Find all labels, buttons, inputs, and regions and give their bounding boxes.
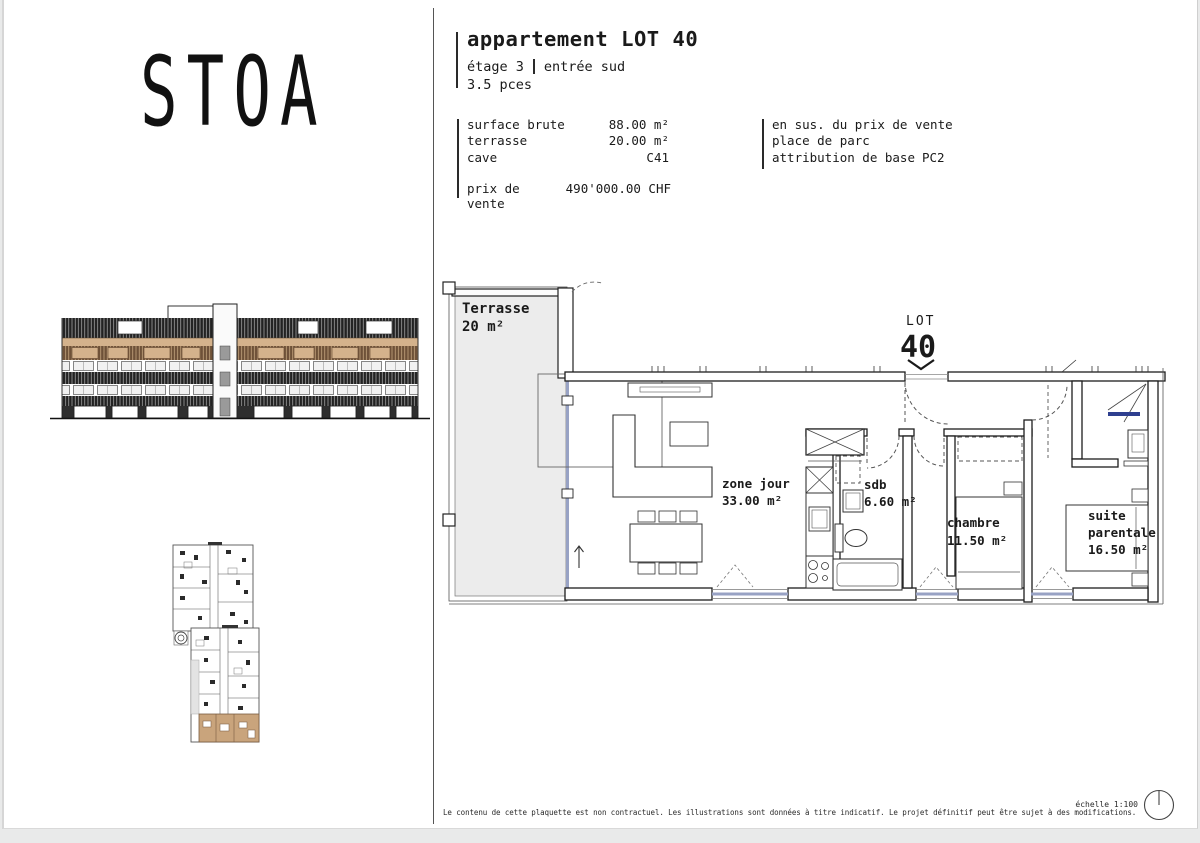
price-value: 490'000.00 CHF	[559, 181, 671, 211]
title-rule	[456, 32, 458, 88]
detail-label: cave	[467, 150, 591, 166]
living-room-furniture	[575, 383, 713, 574]
stairwell-tower	[213, 304, 237, 418]
entry-arrow	[575, 546, 584, 568]
living-label: zone jour	[722, 476, 790, 491]
elevator-symbol	[174, 631, 188, 645]
lot-caption: LOT	[906, 314, 935, 329]
building-elevation	[48, 300, 433, 422]
extras-item: place de parc	[772, 133, 953, 149]
highlighted-floor-3	[62, 338, 418, 360]
terrace-post	[443, 282, 455, 294]
bedroom-label: chambre	[947, 515, 1000, 530]
bath-area-label: 6.60 m²	[864, 494, 917, 509]
table-row: cave C41	[467, 150, 669, 166]
terrace-post	[443, 514, 455, 526]
attribution-label: attribution de base	[772, 150, 922, 166]
nightstand	[1004, 482, 1022, 495]
lot-number: 40	[900, 330, 936, 365]
bathtub	[833, 559, 902, 590]
price-row: prix de vente 490'000.00 CHF	[467, 181, 671, 211]
extras-block: en sus. du prix de vente place de parc a…	[772, 117, 953, 166]
living-area-label: 33.00 m²	[722, 493, 782, 508]
detail-value: 88.00 m²	[591, 117, 669, 133]
detail-value: 20.00 m²	[591, 133, 669, 149]
detail-value: C41	[591, 150, 669, 166]
plaquette-page: STOA appartement LOT 40 étage 3entrée su…	[0, 0, 1200, 843]
entrance-door	[905, 375, 948, 425]
table-row: surface brute 88.00 m²	[467, 117, 669, 133]
entrance-label: entrée sud	[544, 59, 625, 75]
floor-plan: Terrasse 20 m² zone jour 33.00 m² sdb 6.…	[438, 278, 1178, 618]
key-plan-terrace-strip	[191, 660, 199, 714]
north-indicator-icon	[1142, 787, 1178, 823]
pieces-label: 3.5 pces	[467, 77, 532, 93]
bath-label: sdb	[864, 477, 887, 492]
stove	[806, 556, 833, 588]
terrace-area-label: 20 m²	[462, 319, 504, 335]
details-rule	[457, 119, 459, 198]
details-table: surface brute 88.00 m² terrasse 20.00 m²…	[467, 117, 669, 166]
separator-bar	[533, 59, 535, 74]
shower-corner	[1108, 384, 1146, 422]
suite-label-2: parentale	[1088, 525, 1156, 540]
desk	[1124, 430, 1148, 466]
extras-attribution: attribution de base PC2	[772, 150, 953, 166]
sideboard	[628, 383, 712, 397]
detail-label: terrasse	[467, 133, 591, 149]
nightstand	[1132, 573, 1148, 586]
key-plan	[158, 528, 288, 753]
ground-floor	[62, 406, 418, 418]
shower-glass	[1108, 412, 1140, 416]
bedroom-area-label: 11.50 m²	[947, 533, 1007, 548]
terrace-label: Terrasse	[462, 301, 529, 317]
key-plan-lot40-highlight	[199, 714, 259, 742]
suite-area-label: 16.50 m²	[1088, 542, 1148, 557]
floor-entrance-line: étage 3entrée sud	[467, 59, 625, 75]
bedroom-furniture	[956, 437, 1022, 589]
detail-label: surface brute	[467, 117, 591, 133]
facade-pillar	[558, 288, 573, 378]
price-label: prix de vente	[467, 181, 559, 211]
wardrobe-dashed	[958, 437, 1022, 461]
suite-label-1: suite	[1088, 508, 1126, 523]
apartment-title: appartement LOT 40	[467, 27, 698, 51]
floor-label: étage 3	[467, 59, 524, 75]
lower-floors	[62, 360, 418, 408]
brand-logo: STOA	[140, 42, 327, 142]
coffee-table	[670, 422, 708, 446]
dining-set	[630, 511, 702, 574]
table-row: terrasse 20.00 m²	[467, 133, 669, 149]
attic-level	[62, 306, 418, 338]
nightstand	[1132, 489, 1148, 502]
scale-label: échelle 1:100	[1058, 800, 1138, 809]
page-divider	[433, 8, 434, 824]
interior-door-swings	[867, 385, 1067, 468]
lot-marker: LOT 40	[900, 314, 936, 369]
extras-title: en sus. du prix de vente	[772, 117, 953, 133]
disclaimer-text: Le contenu de cette plaquette est non co…	[443, 808, 1136, 817]
toilet	[835, 524, 867, 552]
extras-rule	[762, 119, 764, 169]
attribution-value: PC2	[922, 150, 945, 166]
